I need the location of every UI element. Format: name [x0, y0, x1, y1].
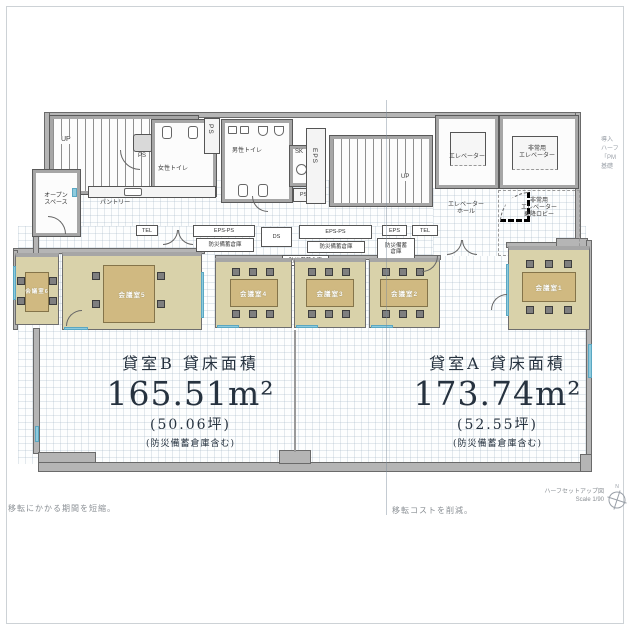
tenant-a-title: 貸室A 貸床面積: [385, 350, 610, 374]
tenant-b-tsubo: (50.06坪): [78, 414, 303, 434]
up-label: UP: [400, 174, 410, 181]
tenant-a-area: 173.74m²: [385, 374, 610, 414]
north-compass: N: [606, 482, 628, 512]
meeting-room: 会議室5: [62, 252, 202, 330]
window: [35, 426, 39, 442]
chair: [92, 272, 100, 280]
left-caption: 移転にかかる期間を短縮。: [8, 503, 116, 514]
chair: [399, 310, 407, 318]
meeting-room-label: 会議室1: [509, 282, 589, 292]
ps-label: PS: [207, 124, 214, 135]
chair: [232, 268, 240, 276]
chair: [249, 268, 257, 276]
eps-label: EPS: [311, 148, 318, 164]
chair: [157, 300, 165, 308]
chair: [308, 310, 316, 318]
disaster-storage-box: 防災備蓄倉庫: [196, 238, 254, 252]
tenant-b-title: 貸室B 貸床面積: [78, 350, 303, 374]
window: [201, 272, 204, 318]
right-caption: 移転コストを削減。: [392, 505, 473, 516]
up-label: UP: [60, 136, 72, 144]
window: [296, 325, 318, 328]
chair: [325, 268, 333, 276]
chair: [342, 310, 350, 318]
drawing-title-block: ハーフセットアップ図 Scale 1/90: [520, 488, 604, 504]
disaster-storage-box: 防災備蓄倉庫: [377, 238, 415, 260]
chair: [545, 306, 553, 314]
womens-toilet-label: 女性トイレ: [158, 166, 188, 173]
chair: [249, 310, 257, 318]
window: [64, 327, 88, 330]
chair: [232, 310, 240, 318]
tenant-b-note: (防災備蓄倉庫含む): [78, 436, 303, 449]
stairwell-mid: [330, 136, 432, 206]
sk-label: SK: [295, 149, 303, 156]
chair: [49, 277, 57, 285]
tenant-a-text: 貸室A 貸床面積 173.74m² (52.55坪) (防災備蓄倉庫含む): [385, 350, 610, 449]
meeting-room: 会議室6: [15, 253, 59, 325]
pillar: [279, 450, 311, 464]
svg-text:N: N: [615, 484, 619, 490]
emergency-lobby-label: 非常用 エレベーター 乗降ロビー: [506, 198, 572, 219]
chair: [342, 268, 350, 276]
elevator-hall-label: エレベーター ホール: [436, 202, 496, 216]
drawing-scale: Scale 1/90: [576, 497, 604, 503]
chair: [266, 310, 274, 318]
meeting-room-label: 会議室3: [295, 288, 365, 298]
tenant-a-note: (防災備蓄倉庫含む): [385, 436, 610, 449]
toilet-fixture: [162, 126, 172, 139]
window: [72, 188, 77, 197]
sink-fixture: [228, 126, 237, 134]
chair: [564, 306, 572, 314]
chair: [157, 272, 165, 280]
elevator-label: エレベーター: [438, 154, 496, 161]
tenant-b-area: 165.51m²: [78, 374, 303, 414]
eps-ps-box: EPS-PS: [193, 225, 255, 237]
chair: [92, 300, 100, 308]
meeting-room-label: 会議室5: [63, 289, 201, 299]
pantry-sink: [124, 188, 142, 196]
chair: [526, 306, 534, 314]
tel-box: TEL: [412, 225, 438, 236]
window: [217, 325, 239, 328]
toilet-fixture: [188, 126, 198, 139]
emergency-elevator-label: 非常用 エレベーター: [504, 146, 570, 160]
chair: [545, 260, 553, 268]
meeting-room: 会議室4: [215, 258, 292, 328]
page-fold-line: [386, 100, 387, 515]
meeting-room-label: 会議室2: [370, 288, 439, 298]
chair: [266, 268, 274, 276]
ds-box: DS: [261, 227, 292, 247]
chair: [564, 260, 572, 268]
sink-fixture: [240, 126, 249, 134]
meeting-room: 会議室3: [294, 258, 366, 328]
urinal-fixture: [274, 126, 284, 136]
meeting-room-label: 会議室4: [216, 288, 291, 298]
chair: [17, 297, 25, 305]
window: [13, 266, 16, 300]
chair: [308, 268, 316, 276]
meeting-room: 会議室1: [508, 246, 590, 330]
eps-ps-box: EPS-PS: [299, 225, 372, 239]
mens-toilet-label: 男性トイレ: [232, 148, 262, 155]
chair: [416, 310, 424, 318]
chair: [17, 277, 25, 285]
chair: [399, 268, 407, 276]
window: [371, 325, 393, 328]
pillar: [580, 454, 592, 472]
drawing-title: ハーフセットアップ図: [544, 489, 604, 495]
chair: [526, 260, 534, 268]
pantry-counter: [88, 186, 216, 198]
eps-shaft: [306, 128, 326, 204]
tenant-a-tsubo: (52.55坪): [385, 414, 610, 434]
meeting-room-label: 会議室6: [16, 287, 58, 295]
urinal-fixture: [258, 126, 268, 136]
chair: [49, 297, 57, 305]
toilet-fixture: [238, 184, 248, 197]
tel-box: TEL: [136, 225, 158, 236]
margin-note: 導入 ハーフ 「PM 基礎: [601, 136, 630, 180]
pantry-label: パントリー: [100, 200, 130, 207]
chair: [325, 310, 333, 318]
open-space-label: オープン スペース: [36, 193, 76, 207]
tenant-b-text: 貸室B 貸床面積 165.51m² (50.06坪) (防災備蓄倉庫含む): [78, 350, 303, 449]
floor-plan-page: UP オープン スペース PS 女性トイレ PS 男性トイレ SK PS EPS…: [0, 0, 630, 630]
disaster-storage-box: 防災備蓄倉庫: [307, 241, 365, 253]
wall-bottom: [38, 462, 592, 472]
